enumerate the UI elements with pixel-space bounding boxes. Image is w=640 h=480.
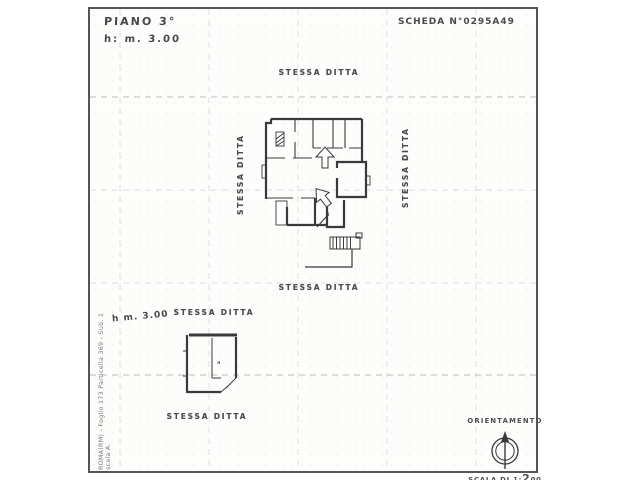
interior-partitions bbox=[266, 119, 361, 227]
main-plan-label-top: STESSA DITTA bbox=[254, 68, 384, 77]
annex-label-top: STESSA DITTA bbox=[154, 308, 274, 317]
door-swing-arrows bbox=[310, 147, 336, 210]
orientation-title: ORIENTAMENTO bbox=[466, 417, 544, 425]
annex-label-bottom: STESSA DITTA bbox=[147, 412, 267, 421]
staircase bbox=[305, 233, 362, 267]
compass-icon bbox=[470, 426, 540, 472]
main-plan-label-right: STESSA DITTA bbox=[401, 127, 410, 208]
watermark-line2: scala A. bbox=[105, 313, 112, 470]
scale-prefix: SCALA DI 1: bbox=[468, 476, 522, 480]
annex-partitions bbox=[183, 338, 236, 392]
cadastral-watermark: ROMA(RM) - Foglio 173 Particella 369 - S… bbox=[98, 313, 112, 470]
main-plan-label-left: STESSA DITTA bbox=[236, 134, 245, 215]
floor-height-label: h: m. 3.00 bbox=[104, 34, 182, 45]
scale-suffix: 00 bbox=[531, 476, 542, 480]
sheet-number-label: SCHEDA N°0295A49 bbox=[398, 17, 515, 27]
north-arrow bbox=[501, 431, 509, 442]
annex-floor-plan: a bbox=[181, 330, 243, 402]
orientation-block: ORIENTAMENTO SCALA DI 1:200 bbox=[466, 417, 544, 480]
floor-label: PIANO 3° bbox=[104, 15, 177, 28]
main-plan-label-bottom: STESSA DITTA bbox=[257, 283, 381, 292]
scanned-cadastral-sheet: PIANO 3° h: m. 3.00 SCHEDA N°0295A49 STE… bbox=[0, 0, 640, 480]
watermark-line1: ROMA(RM) - Foglio 173 Particella 369 - S… bbox=[98, 313, 105, 470]
scale-label: SCALA DI 1:200 bbox=[466, 472, 544, 480]
main-floor-plan: a bbox=[255, 112, 380, 272]
main-room-label: a bbox=[326, 211, 330, 218]
scale-digit-handwritten: 2 bbox=[522, 472, 530, 480]
annex-room-label: a bbox=[217, 360, 221, 366]
sheet-frame: PIANO 3° h: m. 3.00 SCHEDA N°0295A49 STE… bbox=[88, 7, 538, 473]
